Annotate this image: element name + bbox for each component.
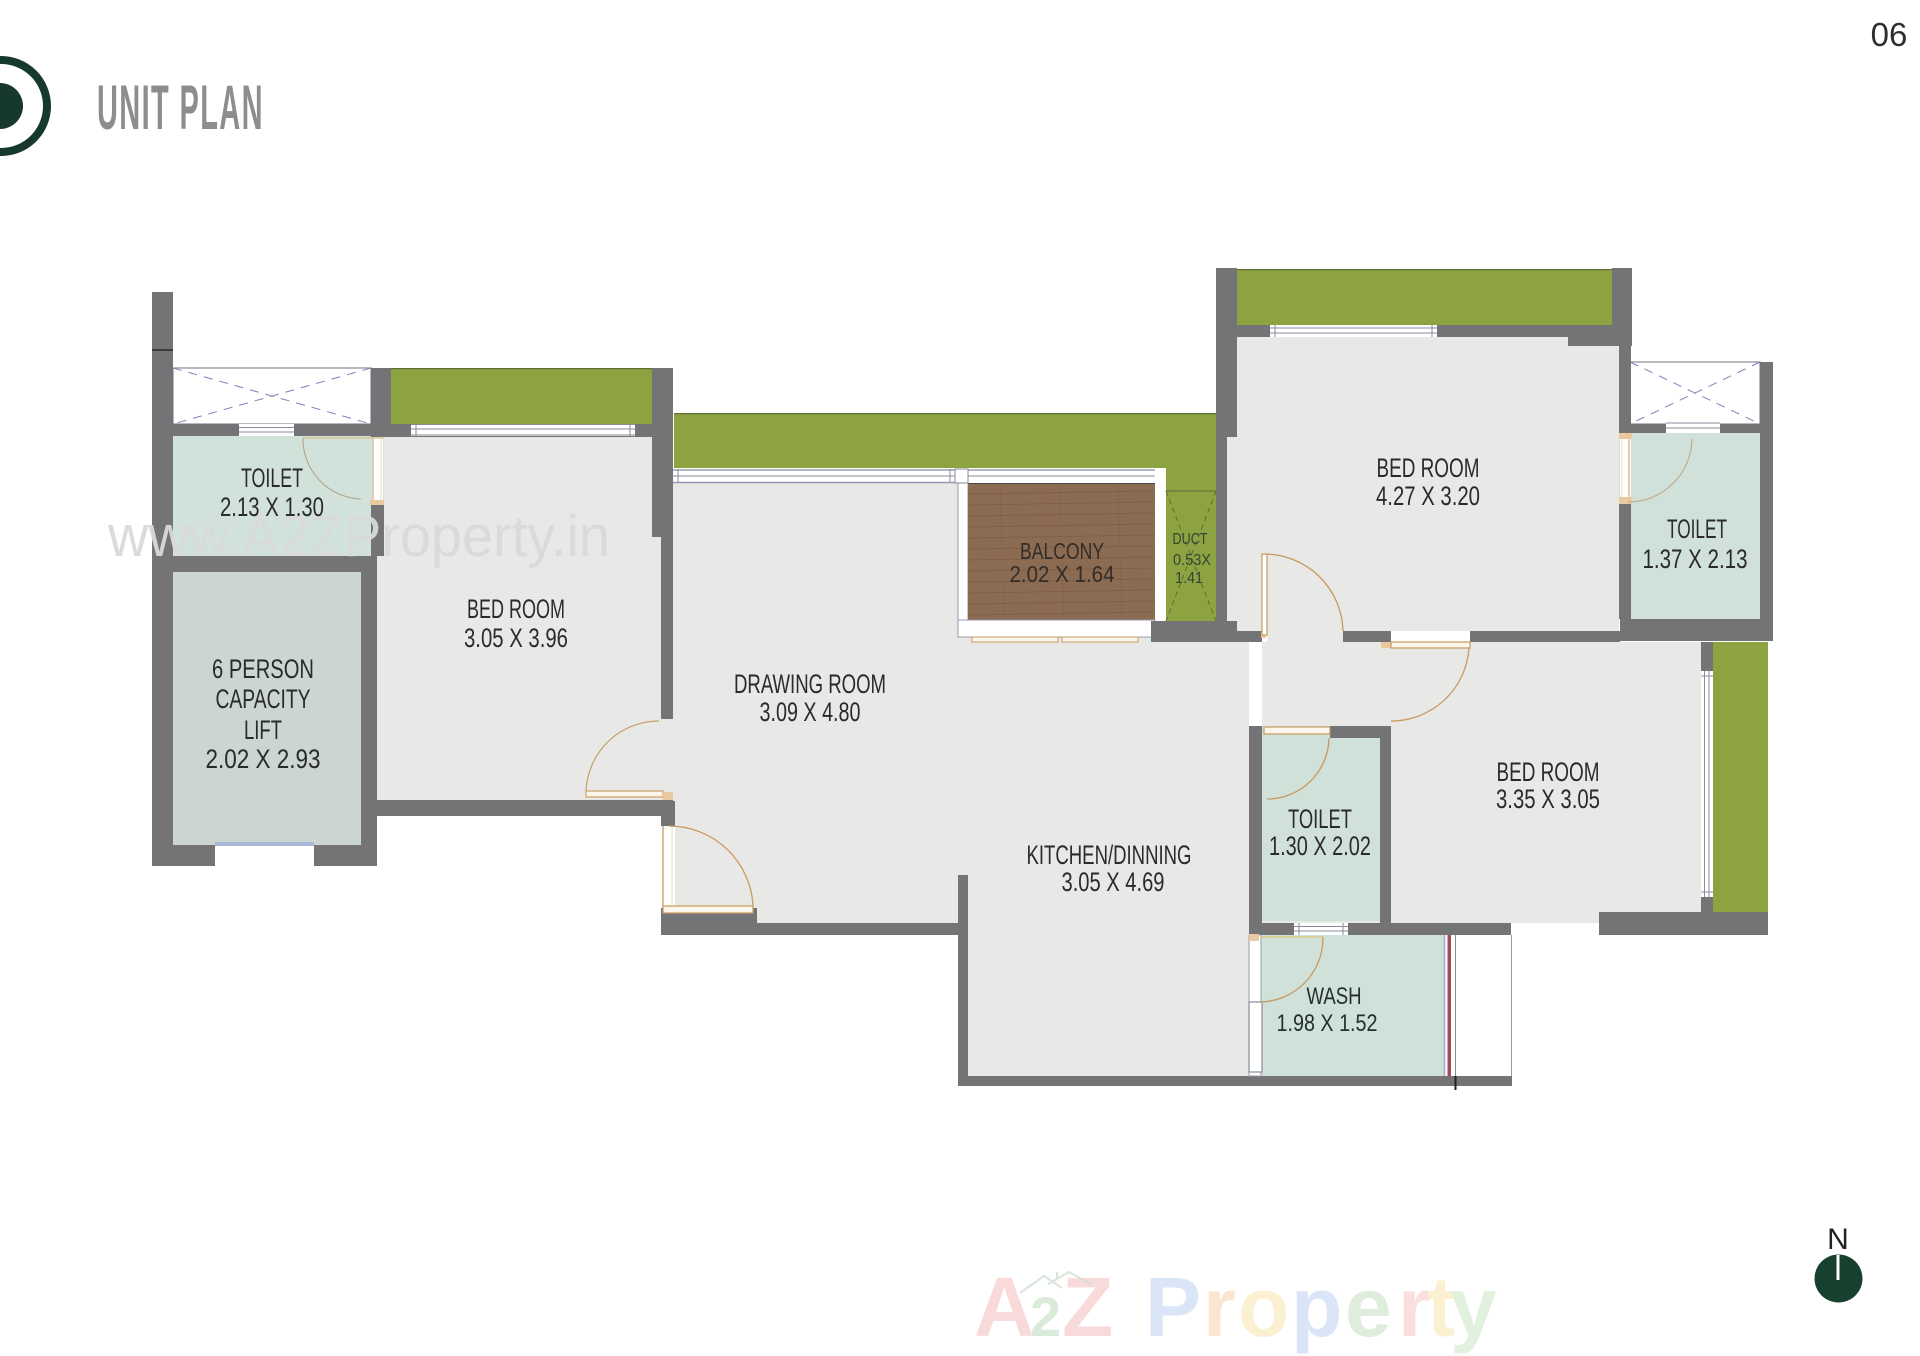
svg-text:TOILET: TOILET: [1667, 514, 1727, 544]
svg-text:1.41: 1.41: [1175, 570, 1203, 587]
svg-text:3.05 X 4.69: 3.05 X 4.69: [1062, 867, 1165, 897]
svg-text:www.A2ZProperty.in: www.A2ZProperty.in: [107, 504, 610, 569]
svg-text:2.13 X 1.30: 2.13 X 1.30: [220, 492, 324, 522]
svg-text:06: 06: [1871, 16, 1908, 53]
svg-text:p: p: [1291, 1260, 1342, 1354]
svg-text:N: N: [1827, 1223, 1849, 1256]
svg-text:1.98 X 1.52: 1.98 X 1.52: [1277, 1010, 1378, 1037]
svg-text:DRAWING ROOM: DRAWING ROOM: [734, 669, 886, 699]
svg-text:DUCT: DUCT: [1173, 531, 1208, 548]
svg-text:1.30 X 2.02: 1.30 X 2.02: [1269, 831, 1371, 861]
svg-text:BED ROOM: BED ROOM: [1497, 757, 1600, 787]
svg-text:o: o: [1238, 1260, 1289, 1354]
svg-text:4.27 X 3.20: 4.27 X 3.20: [1376, 481, 1480, 511]
svg-text:WASH: WASH: [1307, 983, 1362, 1010]
svg-text:2.02 X 1.64: 2.02 X 1.64: [1010, 561, 1115, 587]
svg-text:e: e: [1345, 1260, 1392, 1354]
svg-text:UNIT PLAN: UNIT PLAN: [97, 74, 264, 143]
svg-text:3.09 X 4.80: 3.09 X 4.80: [760, 697, 861, 727]
svg-text:3.35 X 3.05: 3.35 X 3.05: [1496, 784, 1600, 814]
svg-text:LIFT: LIFT: [244, 715, 282, 745]
svg-text:BED ROOM: BED ROOM: [467, 594, 565, 624]
svg-text:CAPACITY: CAPACITY: [216, 684, 311, 714]
svg-text:0.53X: 0.53X: [1173, 552, 1211, 569]
svg-text:1.37 X 2.13: 1.37 X 2.13: [1643, 544, 1748, 574]
svg-text:r: r: [1203, 1260, 1236, 1354]
svg-text:r: r: [1398, 1260, 1431, 1354]
svg-text:BED ROOM: BED ROOM: [1377, 453, 1480, 483]
svg-text:2.02 X 2.93: 2.02 X 2.93: [206, 744, 321, 774]
svg-text:A: A: [974, 1260, 1035, 1354]
svg-text:6 PERSON: 6 PERSON: [212, 654, 314, 684]
svg-text:TOILET: TOILET: [1288, 804, 1352, 834]
svg-text:y: y: [1450, 1260, 1497, 1354]
svg-text:KITCHEN/DINNING: KITCHEN/DINNING: [1027, 840, 1192, 870]
svg-text:2: 2: [1030, 1285, 1061, 1348]
svg-text:P: P: [1145, 1260, 1201, 1354]
svg-text:TOILET: TOILET: [241, 463, 303, 493]
svg-text:Z: Z: [1062, 1260, 1113, 1354]
svg-text:3.05 X 3.96: 3.05 X 3.96: [464, 623, 568, 653]
